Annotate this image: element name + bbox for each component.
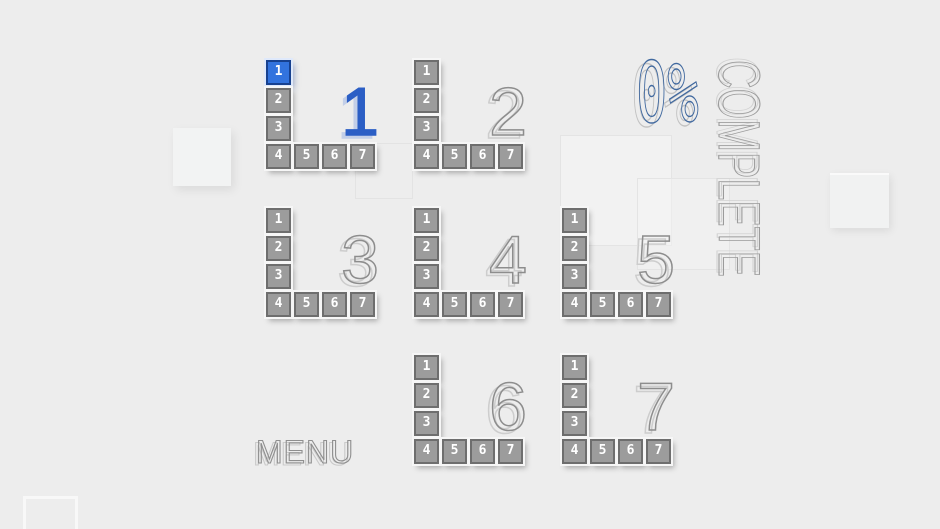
level-number-text: 1	[341, 84, 379, 140]
progress-complete-text: COMPLETE	[714, 60, 762, 277]
level-tile-2-4[interactable]: 4	[414, 144, 439, 169]
level-tile-5-4[interactable]: 4	[562, 292, 587, 317]
level-tile-1-4[interactable]: 4	[266, 144, 291, 169]
level-tile-1-1[interactable]: 1	[266, 60, 291, 85]
level-tile-2-3[interactable]: 3	[414, 116, 439, 141]
level-group-7: 123456777	[562, 355, 671, 464]
level-tile-7-1[interactable]: 1	[562, 355, 587, 380]
menu-button-label: MENU	[256, 438, 354, 466]
level-group-5: 123456755	[562, 208, 671, 317]
level-tile-7-5[interactable]: 5	[590, 439, 615, 464]
level-tile-6-5[interactable]: 5	[442, 439, 467, 464]
level-tile-6-4[interactable]: 4	[414, 439, 439, 464]
level-tile-5-1[interactable]: 1	[562, 208, 587, 233]
level-tile-4-4[interactable]: 4	[414, 292, 439, 317]
level-tile-5-2[interactable]: 2	[562, 236, 587, 261]
level-tile-3-4[interactable]: 4	[266, 292, 291, 317]
level-tile-4-1[interactable]: 1	[414, 208, 439, 233]
level-tile-1-5[interactable]: 5	[294, 144, 319, 169]
level-tile-6-2[interactable]: 2	[414, 383, 439, 408]
decor-square	[830, 173, 889, 228]
level-tile-2-5[interactable]: 5	[442, 144, 467, 169]
level-tile-4-3[interactable]: 3	[414, 264, 439, 289]
level-group-1: 123456711	[266, 60, 375, 169]
decor-square	[23, 496, 78, 529]
level-group-4: 123456744	[414, 208, 523, 317]
level-number-text: 7	[637, 379, 675, 435]
level-tile-1-2[interactable]: 2	[266, 88, 291, 113]
progress-complete-label: COMPLETE COMPLETE	[710, 60, 762, 298]
menu-button[interactable]: MENU MENU	[256, 438, 356, 472]
level-tile-7-2[interactable]: 2	[562, 383, 587, 408]
level-number-text: 6	[489, 379, 527, 435]
level-number-text: 2	[489, 84, 527, 140]
level-tile-5-5[interactable]: 5	[590, 292, 615, 317]
level-group-2: 123456722	[414, 60, 523, 169]
level-number-text: 3	[341, 232, 379, 288]
progress-percent-value: 0%	[636, 60, 699, 126]
level-tile-1-3[interactable]: 3	[266, 116, 291, 141]
level-tile-4-5[interactable]: 5	[442, 292, 467, 317]
level-tile-2-1[interactable]: 1	[414, 60, 439, 85]
level-tile-6-1[interactable]: 1	[414, 355, 439, 380]
level-group-6: 123456766	[414, 355, 523, 464]
level-tile-2-2[interactable]: 2	[414, 88, 439, 113]
level-tile-3-3[interactable]: 3	[266, 264, 291, 289]
level-tile-7-4[interactable]: 4	[562, 439, 587, 464]
level-group-3: 123456733	[266, 208, 375, 317]
level-tile-4-2[interactable]: 2	[414, 236, 439, 261]
level-tile-6-3[interactable]: 3	[414, 411, 439, 436]
level-select-screen: 1234567111234567221234567331234567441234…	[0, 0, 940, 529]
level-number-text: 5	[637, 232, 675, 288]
level-tile-3-1[interactable]: 1	[266, 208, 291, 233]
level-tile-7-3[interactable]: 3	[562, 411, 587, 436]
decor-square	[173, 128, 231, 186]
level-tile-3-2[interactable]: 2	[266, 236, 291, 261]
level-tile-5-3[interactable]: 3	[562, 264, 587, 289]
level-number-text: 4	[489, 232, 527, 288]
level-tile-3-5[interactable]: 5	[294, 292, 319, 317]
